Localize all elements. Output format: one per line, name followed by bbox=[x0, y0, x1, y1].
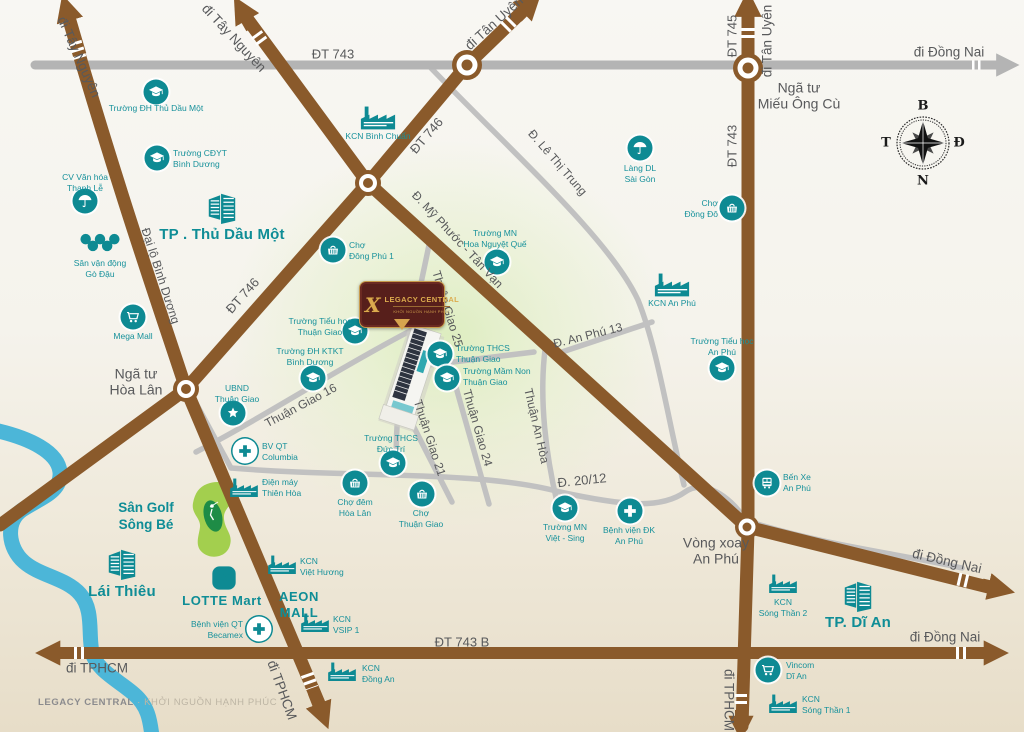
project-tagline: KHỞI NGUỒN HẠNH PHÚC bbox=[393, 306, 450, 314]
di-tay-nguyen-n-label: đi Tây Nguyên bbox=[199, 1, 269, 75]
thuan-giao-21-label: Thuận Giao 21 bbox=[410, 398, 447, 478]
dt743-top-label: ĐT 743 bbox=[312, 48, 354, 63]
dt743-e-label: ĐT 743 bbox=[726, 125, 741, 167]
di-dong-nai-e-label: đi Đồng Nai bbox=[910, 629, 981, 644]
di-dong-nai-ne-label: đi Đồng Nai bbox=[914, 44, 985, 59]
dt745-label: ĐT 745 bbox=[726, 15, 741, 57]
di-tphcm-se-label: đi TPHCM bbox=[721, 669, 736, 731]
project-plaque: X LEGACY CENTRAL KHỞI NGUỒN HẠNH PHÚC bbox=[359, 281, 445, 328]
compass-east-label: Đ bbox=[953, 136, 964, 151]
dt746-n-label: ĐT 746 bbox=[408, 115, 447, 157]
road-label-layer: ĐT 743đi Đồng Naiđi Tây Nguyênđi Tây Ngu… bbox=[0, 0, 1024, 732]
thuan-an-hoa-label: Thuận An Hòa bbox=[521, 387, 551, 465]
dt746-s-label: ĐT 746 bbox=[223, 275, 262, 316]
nga-tu-mieu-ong-cu-label: Ngã tưMiếu Ông Cù bbox=[758, 80, 840, 111]
di-dong-nai-se-label: đi Đồng Nai bbox=[911, 546, 983, 577]
vong-xoay-an-phu-label: Vòng xoayAn Phú bbox=[683, 535, 749, 566]
d-my-phuoc-tan-van-label: Đ. Mỹ Phước - Tân Vạn bbox=[409, 189, 505, 291]
thuan-giao-24-label: Thuận Giao 24 bbox=[460, 388, 495, 468]
nga-tu-hoa-lan-label: Ngã tưHòa Lân bbox=[110, 366, 163, 397]
di-tan-uyen-n-label: đi Tân Uyên bbox=[462, 0, 526, 53]
dt743b-label: ĐT 743 B bbox=[435, 636, 490, 651]
di-tay-nguyen-w-label: đi Tây Nguyên bbox=[54, 14, 103, 99]
d-le-thi-trung-label: Đ. Lê Thị Trung bbox=[525, 127, 589, 198]
di-tan-uyen-e-label: đi Tân Uyên bbox=[759, 5, 774, 78]
compass-west-label: T bbox=[881, 136, 891, 151]
d-an-phu-13-label: Đ. An Phú 13 bbox=[552, 321, 624, 351]
project-name: LEGACY CENTRAL bbox=[385, 295, 460, 304]
thuan-giao-16-label: Thuận Giao 16 bbox=[263, 381, 339, 430]
map-canvas: Trường ĐH Thủ Dầu MộtTrường CĐYTBình Dươ… bbox=[0, 0, 1024, 732]
compass-north-label: B bbox=[918, 99, 929, 114]
project-logo-icon: X bbox=[365, 295, 381, 315]
di-tphcm-w-label: đi TPHCM bbox=[66, 660, 128, 675]
compass-south-label: N bbox=[917, 174, 929, 189]
footer-tagline: LEGACY CENTRAL · KHỞI NGUỒN HẠNH PHÚC bbox=[38, 697, 277, 708]
dai-lo-binh-duong-label: Đại lộ Bình Dương bbox=[138, 226, 182, 325]
d-20-12-label: Đ. 20/12 bbox=[557, 471, 607, 491]
di-tphcm-s-label: đi TPHCM bbox=[264, 658, 299, 721]
plaque-pointer-icon bbox=[394, 319, 410, 338]
